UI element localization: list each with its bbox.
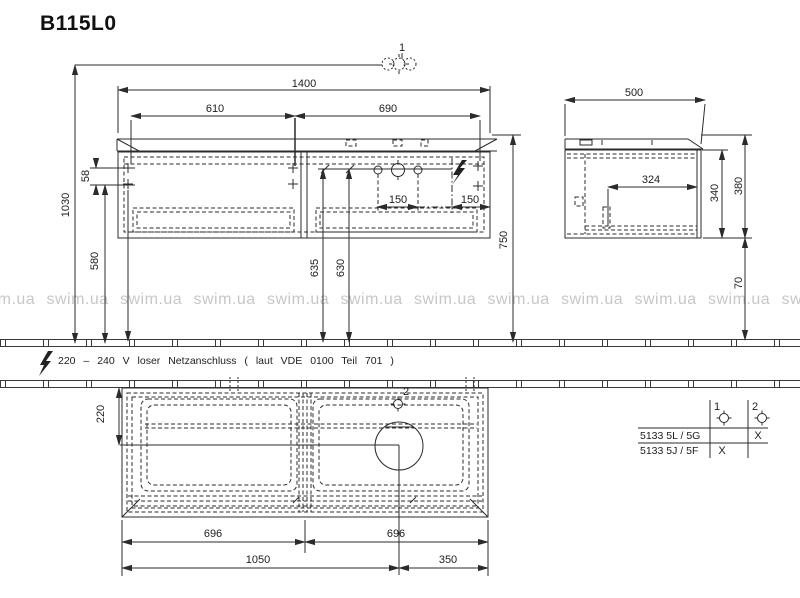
- dim-tap-spacing-right: 150: [461, 194, 479, 206]
- dim-front-left-section: 610: [206, 103, 224, 115]
- dim-side-clearance: 324: [642, 174, 660, 186]
- side-view: [565, 139, 703, 238]
- dim-basin-center-depth: 220: [95, 405, 107, 423]
- plan-view: [120, 377, 488, 575]
- dim-front-total-width: 1400: [292, 78, 316, 90]
- dim-plan-basin-edge: 350: [439, 554, 457, 566]
- front-view: [117, 139, 497, 238]
- lightning-icon-note: [39, 351, 53, 376]
- page-title: B115L0: [40, 12, 117, 36]
- dim-plan-left-drawer: 696: [204, 528, 222, 540]
- dim-height-total: 1030: [60, 193, 72, 217]
- table-row-model: 5133 5J / 5F: [640, 445, 698, 457]
- dim-side-bottom-gap: 70: [733, 277, 745, 289]
- dim-front-right-section: 690: [379, 103, 397, 115]
- table-mark-cell: X: [754, 430, 761, 442]
- dim-drain-left: 635: [309, 259, 321, 277]
- table-col1-header: 1: [714, 401, 720, 413]
- dim-side-inner-height: 340: [709, 184, 721, 202]
- callout-drain-label: 2: [403, 386, 409, 398]
- drawing-linework: [0, 0, 800, 598]
- dim-plan-basin-center: 1050: [246, 554, 270, 566]
- dim-plan-right-drawer: 696: [387, 528, 405, 540]
- electrical-note: 220 – 240 V loser Netzanschluss ( laut V…: [58, 355, 394, 367]
- dim-outlet-gap: 58: [80, 170, 92, 182]
- dim-drain-right: 630: [335, 259, 347, 277]
- table-col2-header: 2: [752, 401, 758, 413]
- mounting-cross-marks: [123, 161, 483, 191]
- table-mark-cell: X: [718, 445, 725, 457]
- dim-outlet-height: 580: [89, 252, 101, 270]
- faucet-callout-icon: [75, 53, 416, 74]
- dim-side-depth: 500: [625, 87, 643, 99]
- table-row-model: 5133 5L / 5G: [640, 430, 700, 442]
- dim-worktop-height: 750: [498, 231, 510, 249]
- dim-side-total-height: 380: [733, 177, 745, 195]
- callout-faucet-label: 1: [399, 42, 405, 54]
- technical-drawing-page: swim.uaswim.uaswim.uaswim.uaswim.uaswim.…: [0, 0, 800, 598]
- dim-tap-spacing-left: 150: [389, 194, 407, 206]
- faucet-holes-front: [318, 160, 452, 180]
